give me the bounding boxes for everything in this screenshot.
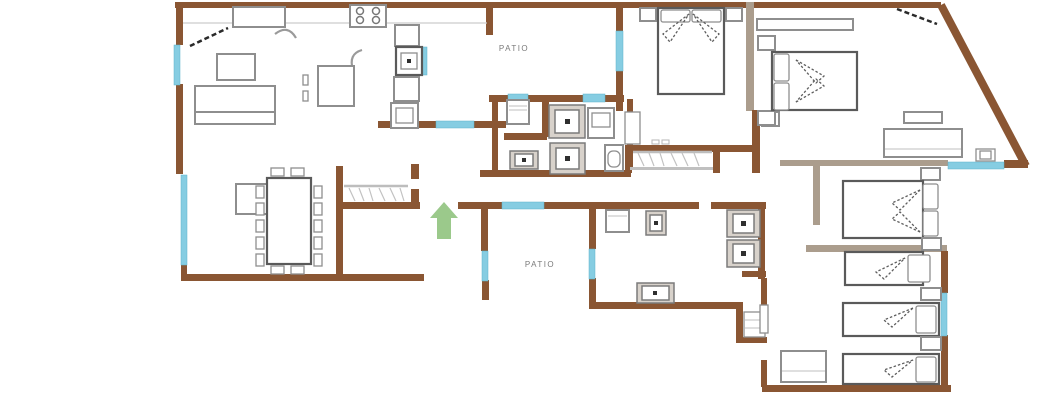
hanger-icon <box>400 188 404 201</box>
wall-segment <box>813 166 820 225</box>
entrance-arrow-icon <box>430 202 458 239</box>
wall-segment <box>411 189 419 208</box>
wall-segment <box>176 84 183 174</box>
wall-segment <box>589 202 596 249</box>
tick-mark <box>652 140 659 144</box>
pillow <box>661 10 690 22</box>
sofa-seat <box>195 112 275 124</box>
hanger-icon <box>369 188 373 201</box>
wall-segment <box>504 133 547 140</box>
wall-segment <box>713 150 720 173</box>
chair <box>291 266 304 274</box>
window-segment <box>436 121 474 128</box>
wall-segment <box>742 337 767 343</box>
wall-segment <box>542 95 549 137</box>
nightstand <box>640 8 656 21</box>
chair <box>314 220 322 232</box>
door-swing-icon <box>897 9 937 24</box>
window-segment <box>583 94 605 102</box>
sideboard <box>233 7 285 27</box>
double-bed <box>843 181 923 238</box>
nightstand <box>758 111 775 125</box>
door-leaf <box>760 305 768 333</box>
hanger-icon <box>682 153 688 166</box>
chair <box>303 91 308 101</box>
chair <box>314 237 322 249</box>
dresser <box>757 19 853 30</box>
wall-segment <box>616 71 623 111</box>
hanger-icon <box>660 153 664 166</box>
chair <box>256 203 264 215</box>
chair <box>314 254 322 266</box>
shower-drain <box>741 251 746 256</box>
floor-plan: PATIO <box>0 0 1049 408</box>
dresser <box>781 351 826 382</box>
wall-segment <box>474 121 506 128</box>
window-segment <box>616 31 623 71</box>
wall-segment <box>176 2 183 45</box>
wall-segment <box>458 202 502 209</box>
shelf <box>904 112 942 123</box>
kitchen-table <box>318 66 354 106</box>
wall-segment <box>411 164 419 179</box>
wall-segment <box>482 280 489 300</box>
tick-mark <box>662 140 669 144</box>
door-leaf <box>625 112 640 144</box>
bidet <box>510 151 538 169</box>
pillow <box>908 255 930 282</box>
hanger-icon <box>349 188 355 201</box>
chair <box>271 266 284 274</box>
shower-stall <box>550 143 585 174</box>
wall-segment <box>596 202 699 209</box>
hanger-icon <box>649 153 654 166</box>
cabinet <box>606 210 629 232</box>
wall-segment <box>492 95 498 177</box>
wall-segment <box>343 202 420 209</box>
hanger-icon <box>694 153 699 166</box>
wall-segment <box>761 278 767 305</box>
chair <box>271 168 284 176</box>
chair <box>314 186 322 198</box>
window-segment <box>589 249 595 279</box>
wall-segment <box>336 166 343 278</box>
hanger-icon <box>379 188 385 201</box>
chair <box>256 254 264 266</box>
wall-segment <box>742 271 766 277</box>
window-segment <box>181 175 187 265</box>
pillow <box>923 184 938 209</box>
window-segment <box>174 45 180 85</box>
kitchen-cabinet-inner <box>396 108 413 123</box>
bidet-drain <box>522 158 526 162</box>
sink-drain <box>654 221 658 225</box>
pillow <box>916 357 936 382</box>
hanger-icon <box>638 153 644 166</box>
wall-segment <box>544 202 591 209</box>
wall-segment <box>736 302 743 343</box>
wall-segment <box>486 2 493 35</box>
chair <box>314 203 322 215</box>
wall-segment <box>1004 160 1028 168</box>
small-cabinet-inner <box>980 151 991 159</box>
wall-segment <box>528 95 584 102</box>
dining-table <box>267 178 311 264</box>
nightstand <box>921 168 940 180</box>
wall-segment <box>762 385 951 392</box>
wall-segment <box>175 2 941 8</box>
wall-segment <box>746 2 754 111</box>
shower-stall <box>727 210 760 237</box>
wardrobe <box>344 186 408 201</box>
chair <box>256 220 264 232</box>
door-swing-icon <box>190 28 228 46</box>
shower-drain <box>565 156 570 161</box>
pillow <box>774 54 789 81</box>
patio-upper-label: PATIO <box>499 44 529 53</box>
nightstand <box>726 8 742 21</box>
hanger-icon <box>359 188 364 201</box>
shower-stall <box>727 240 760 267</box>
sink-unit <box>646 211 666 235</box>
chair <box>291 168 304 176</box>
hanger-icon <box>390 188 396 201</box>
wall-segment <box>941 251 948 293</box>
tub-drain <box>653 291 657 295</box>
sofa <box>195 86 275 112</box>
coffee-table <box>217 54 255 80</box>
dining-room <box>236 168 408 274</box>
wall-segment <box>941 335 948 392</box>
shower-drain <box>565 119 570 124</box>
chair <box>256 237 264 249</box>
kitchen-cabinet <box>395 25 419 46</box>
nightstand <box>922 238 941 250</box>
window-segment <box>482 251 488 281</box>
floor-plan-canvas: PATIO <box>0 0 1049 408</box>
patio-lower-label: PATIO <box>525 260 555 269</box>
window-segment <box>948 162 1004 169</box>
wall-segment <box>181 274 424 281</box>
wall-segment <box>780 160 948 166</box>
sink-drain <box>407 59 411 63</box>
living-room <box>183 7 487 124</box>
wall-segment <box>481 207 488 251</box>
pillow <box>774 83 789 110</box>
kitchen-cabinet <box>394 77 419 101</box>
stove <box>350 5 386 27</box>
bathroom-sink <box>507 100 529 124</box>
chair <box>256 186 264 198</box>
hanger-icon <box>671 153 677 166</box>
corridor-wardrobe <box>630 140 713 170</box>
wardrobe-base <box>630 167 713 170</box>
nightstand <box>921 288 941 300</box>
wall-segment <box>616 2 623 31</box>
wardrobe-unit <box>884 129 962 157</box>
wall-segment <box>711 202 766 209</box>
bathtub <box>637 283 674 303</box>
nightstand <box>758 36 775 50</box>
window-segment <box>502 202 544 209</box>
shower-drain <box>741 221 746 226</box>
pillow <box>692 10 721 22</box>
toilet-bowl <box>608 151 620 167</box>
shower-stall <box>549 105 585 138</box>
wall-segment <box>761 360 767 387</box>
pillow <box>916 306 936 333</box>
nightstand <box>921 337 941 350</box>
bedrooms-right <box>781 168 941 384</box>
armchair <box>275 30 296 38</box>
pillow <box>923 211 938 236</box>
sink-basin <box>592 113 610 127</box>
chair <box>303 75 308 85</box>
